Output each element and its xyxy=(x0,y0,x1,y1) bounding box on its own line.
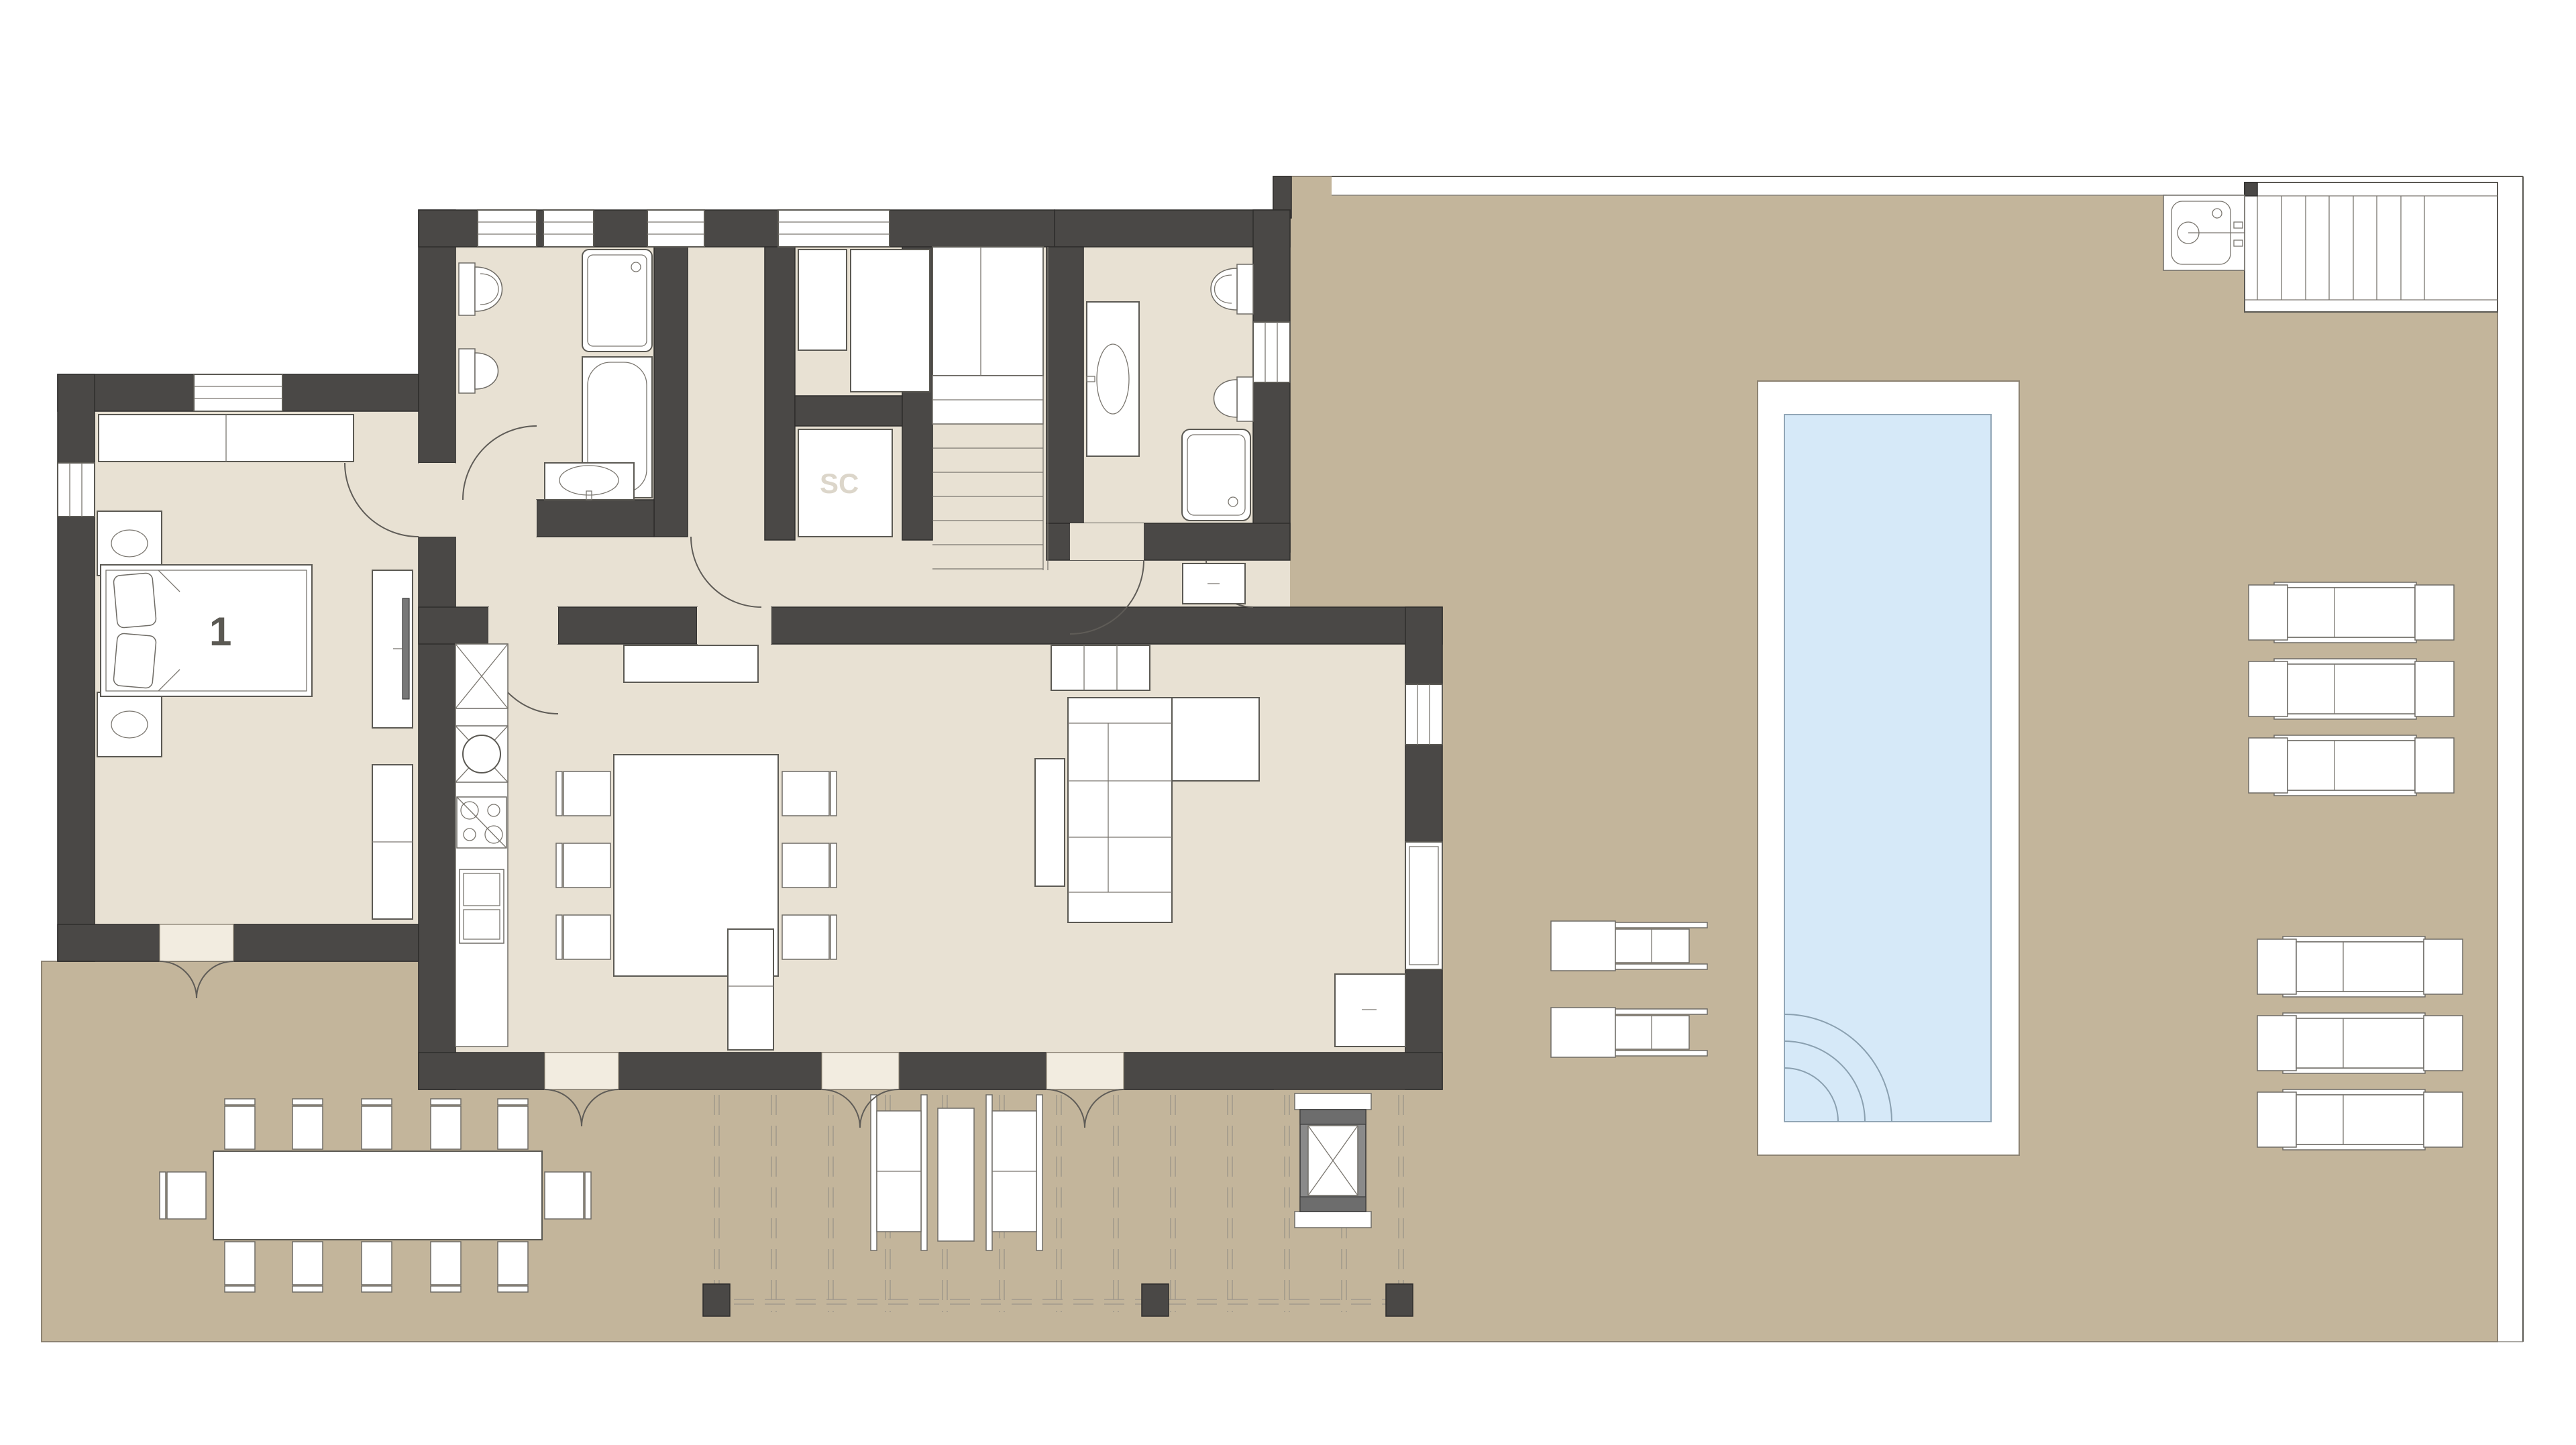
wall xyxy=(765,247,795,540)
side-table xyxy=(938,1108,974,1241)
sun-lounger xyxy=(2249,659,2454,719)
outdoor-sink xyxy=(2163,195,2245,270)
window xyxy=(1253,322,1290,382)
sink-vanity xyxy=(1087,302,1139,456)
tv xyxy=(402,598,409,699)
window xyxy=(543,210,594,247)
dining-area xyxy=(556,755,837,976)
outdoor-dining-chair xyxy=(292,1242,323,1292)
kitchen-sink xyxy=(455,726,508,782)
wall xyxy=(1046,247,1083,523)
sun-lounger xyxy=(2257,1013,2463,1073)
sun-lounger xyxy=(871,1095,927,1250)
dining-chair xyxy=(782,915,837,959)
stove xyxy=(457,797,506,848)
storage-label: SC xyxy=(820,468,859,499)
outdoor-dining-table xyxy=(213,1151,542,1240)
sideboard xyxy=(1051,645,1150,690)
wall xyxy=(419,210,455,463)
sun-lounger xyxy=(2249,735,2454,796)
pergola-post xyxy=(703,1284,730,1316)
outdoor-dining-chair xyxy=(498,1242,528,1292)
outdoor-dining-chair xyxy=(362,1242,392,1292)
wall xyxy=(419,607,488,644)
wall xyxy=(771,607,1442,644)
shower xyxy=(582,250,652,352)
pool xyxy=(1758,381,2019,1155)
dining-chair xyxy=(556,915,610,959)
pergola-post xyxy=(1142,1284,1169,1316)
window xyxy=(1405,684,1442,745)
outdoor-dining-chair xyxy=(362,1099,392,1149)
shower xyxy=(1182,429,1250,521)
window xyxy=(647,210,704,247)
outdoor-dining-chair xyxy=(498,1099,528,1149)
terrace-loungers xyxy=(871,1095,1042,1250)
refrigerator xyxy=(455,644,508,708)
sun-lounger xyxy=(2249,582,2454,643)
dining-chair xyxy=(556,771,610,816)
outdoor-dining-chair xyxy=(292,1099,323,1149)
wall xyxy=(654,247,688,537)
dining-chair xyxy=(556,843,610,888)
outdoor-dining-chair xyxy=(225,1099,255,1149)
wall xyxy=(558,607,697,644)
wall xyxy=(537,500,654,537)
oven xyxy=(460,869,504,943)
sun-lounger xyxy=(2257,936,2463,997)
pool-water xyxy=(1784,415,1991,1122)
sink-vanity xyxy=(545,463,634,500)
sun-lounger xyxy=(2257,1089,2463,1150)
wall xyxy=(795,396,902,426)
window xyxy=(58,463,95,517)
nightstand xyxy=(97,692,162,757)
kitchen-island xyxy=(728,929,773,1050)
dining-chair xyxy=(782,843,837,888)
outdoor-dining-chair xyxy=(160,1172,206,1219)
tv-cabinet xyxy=(1335,974,1405,1047)
sun-lounger xyxy=(986,1095,1042,1250)
outdoor-dining-set xyxy=(160,1099,591,1292)
outdoor-dining-chair xyxy=(431,1242,461,1292)
exterior-stairs xyxy=(2245,182,2498,312)
closet xyxy=(851,250,930,392)
window xyxy=(194,374,282,411)
window xyxy=(1405,842,1442,969)
window xyxy=(778,210,890,247)
floor-plan: SC 1 xyxy=(0,0,2576,1445)
wall xyxy=(58,924,419,961)
bbq-grill xyxy=(1295,1093,1371,1228)
bed: 1 xyxy=(101,565,312,696)
outdoor-dining-chair xyxy=(545,1172,591,1219)
tv-cabinet xyxy=(372,570,413,728)
dining-chair xyxy=(782,771,837,816)
pergola-post xyxy=(1386,1284,1413,1316)
outdoor-dining-chair xyxy=(431,1099,461,1149)
coffee-table xyxy=(1035,759,1065,886)
outdoor-dining-chair xyxy=(225,1242,255,1292)
sideboard xyxy=(624,645,758,682)
closet xyxy=(798,250,847,350)
bedroom-number-label: 1 xyxy=(209,609,231,654)
window xyxy=(478,210,537,247)
